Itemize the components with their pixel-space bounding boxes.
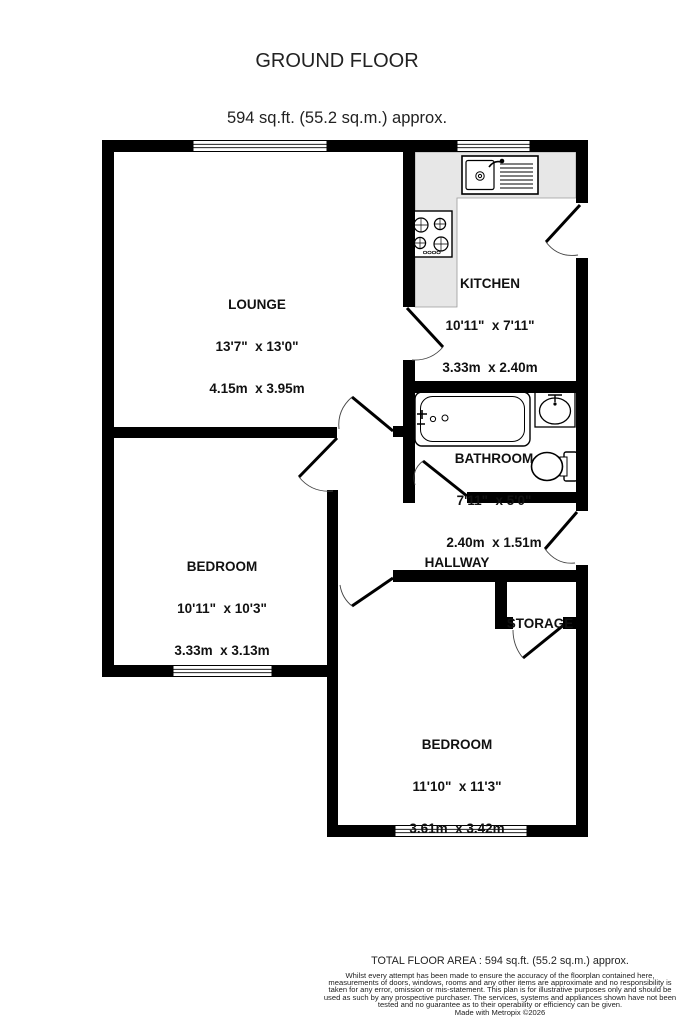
window-lounge	[193, 141, 327, 152]
wall-lounge-bedroom	[102, 427, 337, 438]
room-label-kitchen: KITCHEN 10'11" x 7'11" 3.33m x 2.40m	[442, 249, 537, 403]
room-label-storage: STORAGE	[507, 589, 574, 659]
door-bedroom1	[299, 438, 337, 491]
room-label-lounge: LOUNGE 13'7" x 13'0" 4.15m x 3.95m	[209, 270, 304, 424]
room-name: BATHROOM	[446, 452, 541, 466]
room-name: HALLWAY	[425, 556, 490, 570]
room-dims-metric: 3.33m x 3.13m	[174, 644, 269, 658]
door-kitchen-hall	[407, 308, 443, 360]
door-bedroom2	[340, 578, 393, 606]
wall-lounge-door-stub	[393, 426, 415, 437]
room-label-bedroom1: BEDROOM 10'11" x 10'3" 3.33m x 3.13m	[174, 532, 269, 686]
room-name: LOUNGE	[209, 298, 304, 312]
window-kitchen	[457, 141, 530, 152]
room-dims-imperial: 7'11" x 5'0"	[446, 494, 541, 508]
floorplan-drawing	[0, 0, 700, 1020]
room-name: KITCHEN	[442, 277, 537, 291]
room-dims-metric: 3.61m x 3.42m	[409, 822, 504, 836]
wall-right-upper	[576, 140, 588, 203]
room-dims-imperial: 10'11" x 7'11"	[442, 319, 537, 333]
wall-bedrooms-shared	[327, 490, 338, 837]
room-dims-imperial: 11'10" x 11'3"	[409, 780, 504, 794]
room-label-hallway: HALLWAY	[425, 528, 490, 598]
door-entrance	[545, 512, 577, 563]
kitchen-sink-icon	[462, 156, 538, 194]
door-lounge	[339, 397, 393, 431]
total-floor-area: TOTAL FLOOR AREA : 594 sq.ft. (55.2 sq.m…	[320, 955, 680, 968]
room-label-bedroom2: BEDROOM 11'10" x 11'3" 3.61m x 3.42m	[409, 710, 504, 864]
footer: TOTAL FLOOR AREA : 594 sq.ft. (55.2 sq.m…	[320, 955, 680, 1017]
room-name: BEDROOM	[174, 560, 269, 574]
room-dims-imperial: 10'11" x 10'3"	[174, 602, 269, 616]
room-dims-metric: 3.33m x 2.40m	[442, 361, 537, 375]
door-kitchen-exterior	[546, 205, 580, 255]
wash-basin-icon	[535, 391, 575, 427]
disclaimer-text: Whilst every attempt has been made to en…	[320, 972, 680, 1008]
metropix-credit: Made with Metropix ©2026	[320, 1009, 680, 1017]
wall-right-lower	[576, 565, 588, 837]
wall-left	[102, 140, 114, 677]
room-dims-imperial: 13'7" x 13'0"	[209, 340, 304, 354]
wall-lounge-kitchen	[403, 152, 415, 307]
floorplan-page: GROUND FLOOR 594 sq.ft. (55.2 sq.m.) app…	[0, 0, 700, 1020]
room-name: BEDROOM	[409, 738, 504, 752]
room-dims-metric: 4.15m x 3.95m	[209, 382, 304, 396]
room-name: STORAGE	[507, 617, 574, 631]
